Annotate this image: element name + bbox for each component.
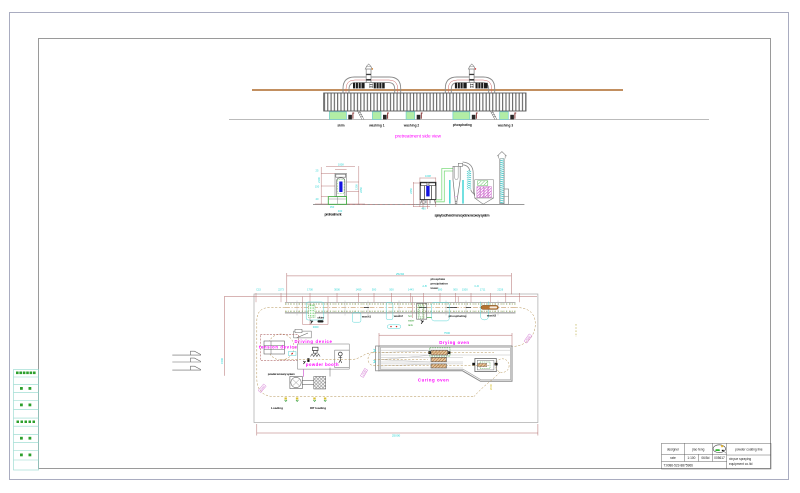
svg-text:1500: 1500 (462, 288, 468, 292)
svg-text:Driving device: Driving device (295, 339, 333, 344)
svg-text:phosphating: phosphating (449, 314, 467, 318)
svg-text:Off loading: Off loading (310, 406, 326, 410)
svg-text:tank: tank (408, 323, 414, 327)
svg-text:500: 500 (389, 288, 394, 292)
svg-text:3000: 3000 (334, 288, 340, 292)
svg-text:1700: 1700 (307, 288, 313, 292)
svg-text:25000: 25000 (392, 434, 401, 438)
svg-text:phosphating: phosphating (453, 123, 472, 127)
svg-text:wash3: wash3 (486, 313, 497, 317)
svg-text:150: 150 (315, 185, 320, 189)
svg-text:500: 500 (438, 288, 443, 292)
svg-text:phosphate: phosphate (431, 277, 446, 281)
svg-text:powder recovery system: powder recovery system (268, 372, 296, 376)
svg-text:1250: 1250 (355, 184, 359, 190)
svg-text:washing 3: washing 3 (497, 123, 514, 127)
svg-text:Loading: Loading (271, 406, 283, 410)
svg-text:skim: skim (337, 123, 344, 127)
svg-text:spray booth and monocyclone re: spray booth and monocyclone recovery sys… (435, 214, 490, 218)
svg-text:1711: 1711 (480, 288, 486, 292)
svg-text:tension device: tension device (259, 345, 298, 350)
svg-text:precipitation: precipitation (431, 282, 449, 286)
svg-text:500: 500 (453, 288, 458, 292)
svg-text:pretreatment side view: pretreatment side view (395, 133, 442, 138)
svg-text:T:0086-523-8875966: T:0086-523-8875966 (664, 464, 694, 468)
svg-text:washing 2: washing 2 (403, 123, 420, 127)
svg-text:1450: 1450 (356, 288, 362, 292)
svg-text:wash2: wash2 (393, 314, 404, 318)
svg-text:350: 350 (330, 205, 335, 209)
svg-text:7500: 7500 (444, 331, 451, 335)
svg-text:005617: 005617 (714, 456, 725, 460)
svg-text:2450: 2450 (409, 188, 413, 194)
svg-text:2000: 2000 (489, 383, 493, 390)
svg-text:skim: skim (317, 316, 324, 320)
svg-text:rate: rate (670, 456, 676, 460)
svg-text:450: 450 (421, 206, 426, 210)
svg-text:washing 1: washing 1 (368, 123, 385, 127)
svg-text:water: water (408, 319, 414, 323)
svg-text:xinyue spraying: xinyue spraying (729, 457, 751, 461)
svg-text:1:100: 1:100 (687, 456, 695, 460)
svg-text:Curing oven: Curing oven (418, 377, 449, 382)
svg-text:powder coating line: powder coating line (735, 448, 763, 452)
svg-text:C15: C15 (256, 288, 261, 292)
svg-text:wash1: wash1 (361, 315, 372, 319)
svg-text:jiao feng: jiao feng (691, 447, 704, 451)
svg-text:06/5d: 06/5d (701, 456, 709, 460)
svg-text:3000: 3000 (313, 325, 319, 329)
svg-text:powder booth: powder booth (306, 362, 339, 367)
svg-text:1008: 1008 (338, 163, 344, 167)
svg-text:500: 500 (372, 288, 377, 292)
svg-text:hot: hot (408, 314, 412, 318)
svg-text:2226: 2226 (497, 288, 503, 292)
svg-text:Drying oven: Drying oven (439, 340, 469, 345)
svg-text:1443: 1443 (408, 288, 414, 292)
svg-text:1008: 1008 (425, 174, 431, 178)
svg-text:equipment co.ltd: equipment co.ltd (729, 462, 753, 466)
svg-text:1500: 1500 (220, 358, 224, 364)
svg-text:A-B: A-B (422, 284, 427, 288)
svg-text:designer: designer (667, 447, 680, 451)
svg-text:25292: 25292 (396, 272, 405, 276)
svg-text:pretreatment: pretreatment (325, 212, 343, 216)
svg-text:2250: 2250 (359, 187, 363, 193)
svg-text:2273: 2273 (278, 288, 284, 292)
svg-text:2100: 2100 (317, 177, 321, 183)
svg-text:C-D: C-D (474, 284, 479, 288)
